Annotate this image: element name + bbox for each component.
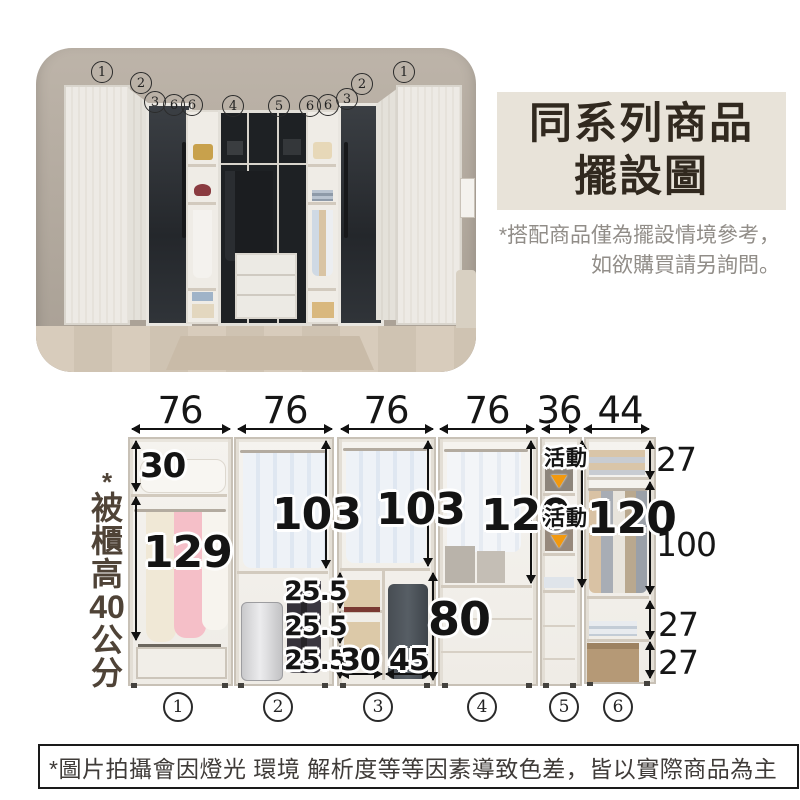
box-beige-1 (344, 580, 380, 612)
width-label-6: 44 (580, 392, 660, 429)
picture-frame (460, 178, 475, 218)
arrow-129 (135, 497, 137, 640)
arrow-27c (649, 601, 651, 639)
shelf-unit-right (306, 110, 342, 324)
blanket-stack (589, 450, 645, 475)
box-gray-1 (445, 546, 475, 583)
suitcase-silver (241, 602, 283, 681)
callout-2: 2 (351, 73, 373, 95)
hat (194, 184, 211, 196)
label-27d: 27 (658, 646, 698, 679)
width-label-3: 76 (346, 392, 426, 429)
unit-number-1: 1 (163, 692, 193, 722)
product-detail-page: 1 2 3 6 6 4 5 6 6 3 2 1 同系列商品 擺設圖 *搭配商品僅… (0, 0, 800, 800)
label-80: 80 (428, 596, 490, 642)
disclaimer-box: *圖片拍攝會因燈光 環境 解析度等等因素導致色差，皆以實際商品為主 (38, 744, 799, 789)
label-gap1: 25.5 (284, 578, 347, 605)
label-103a: 103 (272, 493, 361, 537)
storage-box (312, 302, 334, 318)
side-note-vertical: * 被 櫃 高 40 公 分 (84, 472, 130, 690)
folded-u5 (544, 577, 574, 588)
label-45: 45 (389, 646, 429, 676)
title-line2: 擺設圖 (574, 151, 709, 204)
arrow-27d (649, 642, 651, 678)
unit-number-2: 2 (263, 692, 293, 722)
width-label-1: 76 (140, 392, 220, 429)
label-movable-1: 活動 (544, 448, 588, 469)
label-129: 129 (143, 531, 232, 575)
beige-bag (313, 142, 332, 159)
fabric-box (587, 643, 639, 682)
disclaimer-text: *圖片拍攝會因燈光 環境 解析度等等因素導致色差，皆以實際商品為主 (49, 750, 777, 784)
title-panel: 同系列商品 擺設圖 (497, 92, 786, 210)
width-label-4: 76 (447, 392, 527, 429)
label-103b: 103 (376, 488, 465, 532)
gold-bag (193, 144, 213, 160)
hanging-clothes (312, 210, 333, 276)
arrow-27a (649, 441, 651, 479)
callout-2: 2 (130, 72, 152, 94)
hanging-shirt (193, 210, 212, 278)
arrow-30 (135, 441, 137, 491)
hanging-suits (225, 171, 273, 261)
title-note-line2: 如欲購買請另詢問。 (455, 251, 780, 281)
unit-number-6: 6 (603, 692, 633, 722)
title-note: *搭配商品僅為擺設情境參考， 如欲購買請另詢問。 (455, 221, 780, 281)
folded-stack (312, 190, 333, 201)
unit-number-5: 5 (549, 692, 579, 722)
folded-clothes (192, 292, 213, 301)
label-gap2: 25.5 (284, 613, 347, 640)
title-note-line1: *搭配商品僅為擺設情境參考， (455, 221, 780, 251)
width-label-2: 76 (245, 392, 325, 429)
shelf-unit-left (186, 110, 222, 324)
movable-triangle-1 (551, 475, 567, 488)
drawer-unit1 (136, 647, 227, 679)
door-handle (344, 142, 348, 238)
callout-6: 6 (181, 94, 203, 116)
storage-box (192, 304, 214, 318)
center-drawers (235, 253, 297, 319)
label-30b: 30 (340, 646, 380, 676)
callout-5: 5 (268, 95, 290, 117)
label-gap3: 25.5 (284, 647, 347, 674)
wardrobe-left-outer (64, 85, 130, 325)
wardrobe-right-corner (376, 88, 398, 320)
box-gray-2 (477, 551, 505, 583)
callout-1: 1 (393, 61, 415, 83)
unit-number-4: 4 (467, 692, 497, 722)
label-100: 100 (656, 528, 716, 561)
movable-triangle-2 (551, 535, 567, 548)
box-on-shelf (227, 141, 243, 155)
folded-u6 (589, 621, 637, 636)
wardrobe-right-outer (396, 85, 462, 325)
callout-4: 4 (222, 95, 244, 117)
box-on-shelf (283, 139, 301, 155)
callout-1: 1 (91, 61, 113, 83)
label-movable-2: 活動 (544, 508, 588, 529)
unit-number-3: 3 (363, 692, 393, 722)
title-line1: 同系列商品 (529, 98, 754, 151)
label-30: 30 (140, 449, 185, 483)
room-photo: 1 2 3 6 6 4 5 6 6 3 2 1 (36, 48, 476, 372)
rug (166, 336, 374, 370)
label-27a: 27 (656, 443, 696, 476)
wardrobe-center (218, 110, 312, 326)
label-27c: 27 (658, 608, 698, 641)
